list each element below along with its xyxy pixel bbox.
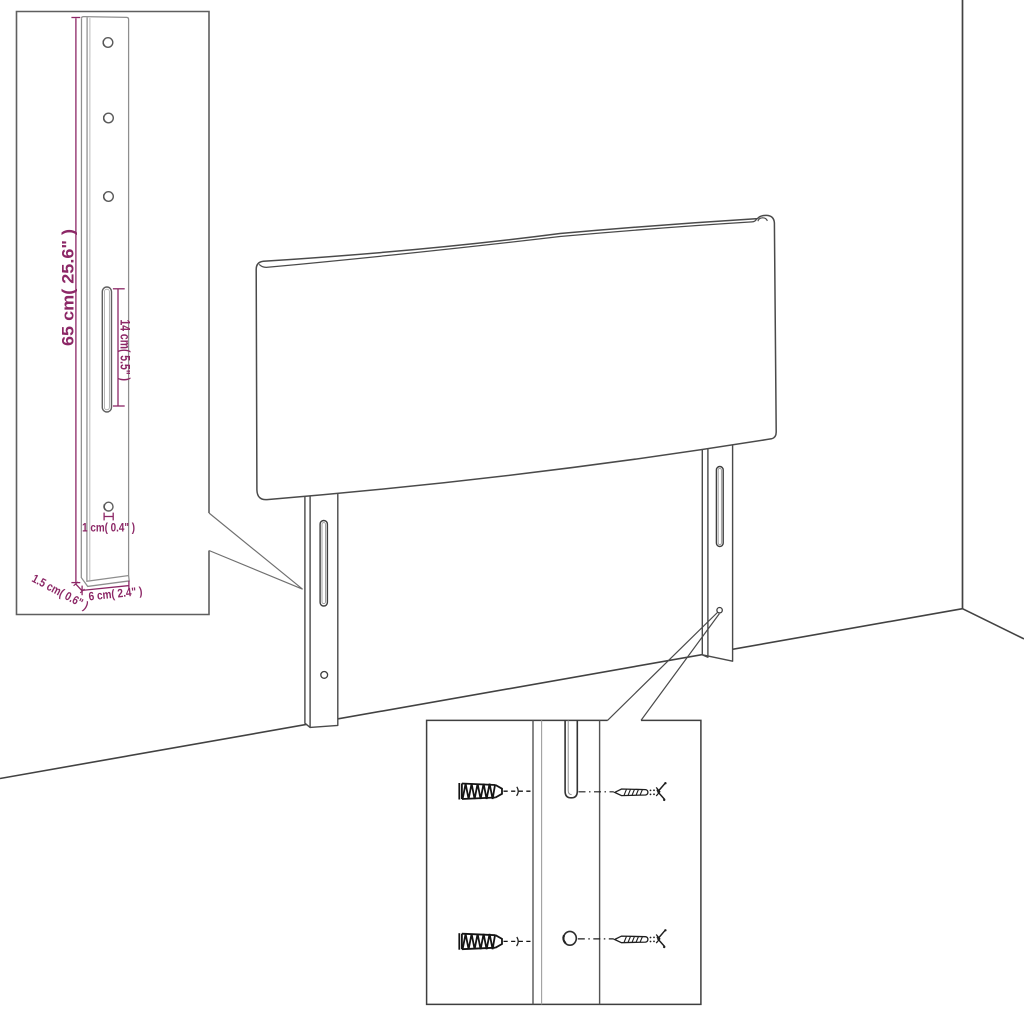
svg-text:65 cm( 25.6" ): 65 cm( 25.6" ) bbox=[59, 229, 78, 346]
svg-text:1 cm( 0.4" ): 1 cm( 0.4" ) bbox=[82, 521, 135, 535]
svg-text:14 cm( 5.5" ): 14 cm( 5.5" ) bbox=[117, 320, 132, 382]
